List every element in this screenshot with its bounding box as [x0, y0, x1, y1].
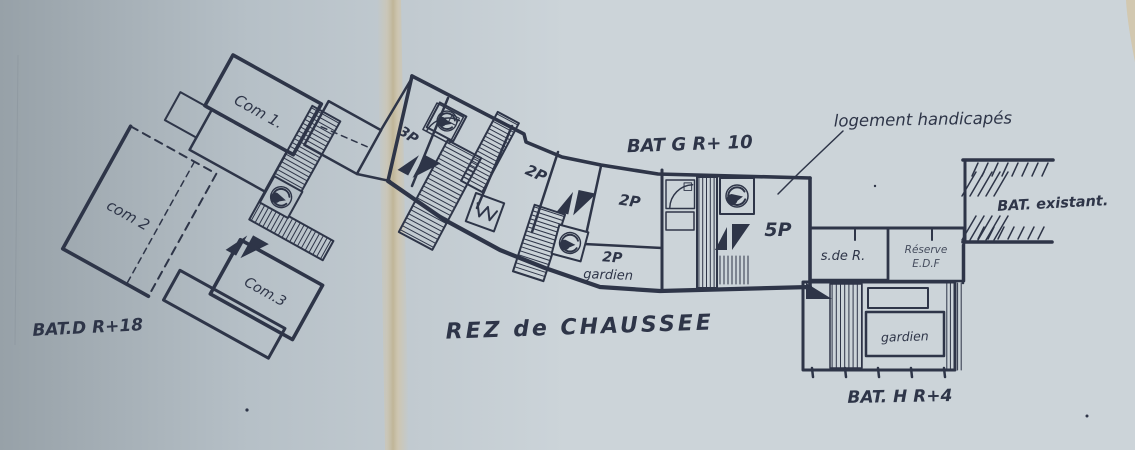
- building-label-bat-h: BAT. H R+4: [847, 386, 952, 408]
- room-label-sdr: s.de R.: [821, 249, 865, 264]
- room-label-2p-b: 2P: [618, 191, 642, 212]
- hatch-line: [845, 368, 846, 377]
- floor-plan-drawing: Com 1. com 2 Com.3 BAT.D R+18: [0, 0, 1135, 450]
- hatch-line: [911, 368, 912, 377]
- hatch-line: [812, 368, 813, 377]
- room-label-reserve-2: E.D.F: [912, 258, 940, 270]
- hatch-line: [944, 368, 945, 377]
- ink-dot: [874, 185, 876, 187]
- room-label-gardien-g: gardien: [583, 267, 633, 284]
- ink-dot: [245, 408, 248, 411]
- room-label-reserve-1: Réserve: [905, 244, 948, 256]
- room-label-5p: 5P: [764, 219, 791, 241]
- hatch-line: [878, 368, 879, 377]
- ink-dot: [1086, 415, 1089, 418]
- annotation-logement-handicapes: logement handicapés: [834, 108, 1013, 130]
- spiral-cell-2: [552, 225, 589, 262]
- room-label-2p-c: 2P: [602, 249, 624, 266]
- room-label-gardien-h: gardien: [881, 328, 929, 345]
- scanned-floor-plan-page: Com 1. com 2 Com.3 BAT.D R+18: [0, 0, 1135, 450]
- building-label-bat-g: BAT G R+ 10: [627, 132, 753, 157]
